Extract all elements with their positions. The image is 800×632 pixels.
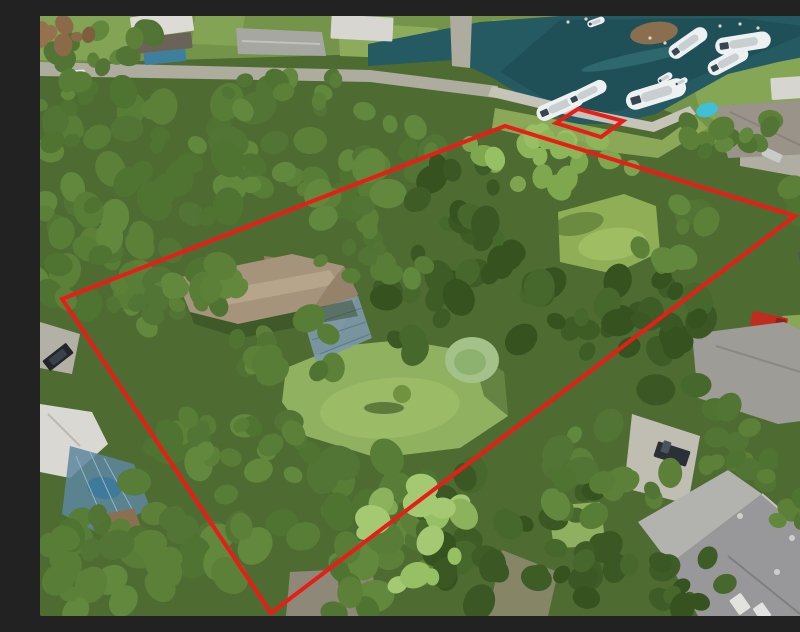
- aerial-photo: [40, 16, 800, 616]
- pale-tree-inner: [454, 349, 486, 375]
- palm-shadow-lawn: [364, 402, 404, 414]
- palm-tree-lawn: [393, 385, 411, 403]
- house-roof-top-center: [330, 16, 393, 42]
- house-roof-tr-white: [770, 76, 800, 100]
- aerial-photo-canvas: [40, 16, 800, 616]
- bridge-street: [450, 16, 472, 68]
